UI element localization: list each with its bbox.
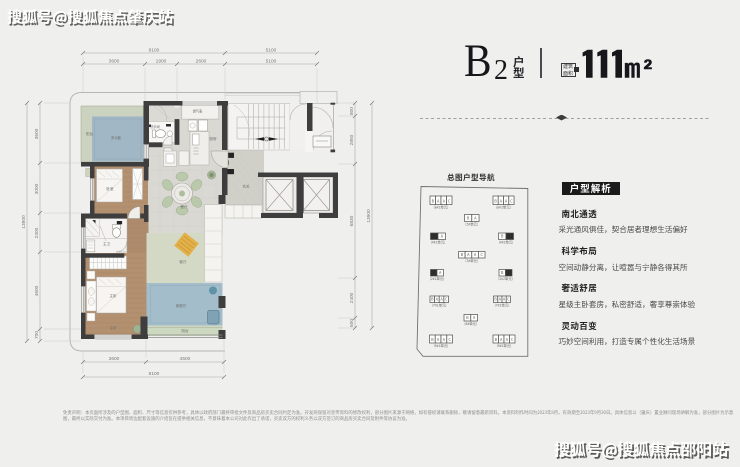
svg-text:主卧: 主卧: [110, 325, 117, 331]
svg-text:厨房: 厨房: [209, 136, 217, 142]
svg-text:客厅: 客厅: [179, 259, 187, 265]
svg-text:700: 700: [34, 331, 40, 339]
svg-text:(7#1单元): (7#1单元): [432, 303, 447, 308]
svg-text:(9#2单元): (9#2单元): [497, 343, 512, 348]
svg-text:5100: 5100: [266, 48, 277, 54]
svg-text:餐厅: 餐厅: [180, 204, 188, 210]
svg-text:燃气表: 燃气表: [193, 109, 203, 114]
svg-text:2400: 2400: [349, 292, 355, 303]
svg-text:(8#单元): (8#单元): [464, 321, 477, 326]
svg-text:(4#1单元): (4#1单元): [431, 240, 446, 245]
svg-text:3600: 3600: [109, 356, 120, 362]
svg-text:阳台: 阳台: [182, 328, 189, 334]
svg-text:(2#2单元): (2#2单元): [498, 276, 513, 281]
svg-text:(6#2单元): (6#2单元): [496, 205, 511, 210]
svg-text:(9#1单元): (9#1单元): [434, 343, 449, 348]
svg-text:3000: 3000: [34, 183, 40, 194]
svg-text:主卫: 主卫: [103, 241, 110, 247]
svg-text:(6#1单元): (6#1单元): [434, 205, 449, 210]
svg-text:(7#2单元): (7#2单元): [495, 303, 510, 308]
svg-text:2300: 2300: [34, 227, 40, 238]
svg-text:3600: 3600: [109, 59, 120, 65]
svg-text:8100: 8100: [149, 371, 160, 377]
svg-text:13900: 13900: [366, 209, 372, 223]
svg-text:2850: 2850: [349, 134, 355, 145]
svg-text:4600: 4600: [34, 285, 40, 296]
svg-text:洗手间: 洗手间: [150, 124, 160, 129]
svg-text:(4#2单元): (4#2单元): [499, 240, 514, 245]
svg-text:(2#1单元): (2#1单元): [430, 276, 445, 281]
svg-text:2600: 2600: [196, 59, 207, 65]
svg-text:13900: 13900: [21, 215, 27, 229]
svg-text:800: 800: [349, 107, 355, 115]
svg-text:4500: 4500: [180, 356, 191, 362]
svg-text:(3#单元): (3#单元): [465, 258, 478, 263]
svg-text:6830: 6830: [349, 215, 355, 226]
svg-text:多功能: 多功能: [111, 135, 122, 140]
svg-text:家庭厅: 家庭厅: [176, 303, 187, 309]
svg-text:阳台: 阳台: [86, 131, 93, 137]
svg-text:卧室: 卧室: [106, 186, 114, 192]
svg-text:主卧: 主卧: [109, 293, 117, 299]
svg-text:600: 600: [349, 319, 355, 327]
svg-text:3600: 3600: [34, 128, 40, 139]
svg-text:5100: 5100: [266, 59, 277, 65]
svg-text:1900: 1900: [156, 59, 167, 65]
svg-text:玄关: 玄关: [243, 184, 250, 190]
svg-text:8100: 8100: [149, 48, 160, 54]
svg-text:(5#单元): (5#单元): [465, 222, 478, 227]
